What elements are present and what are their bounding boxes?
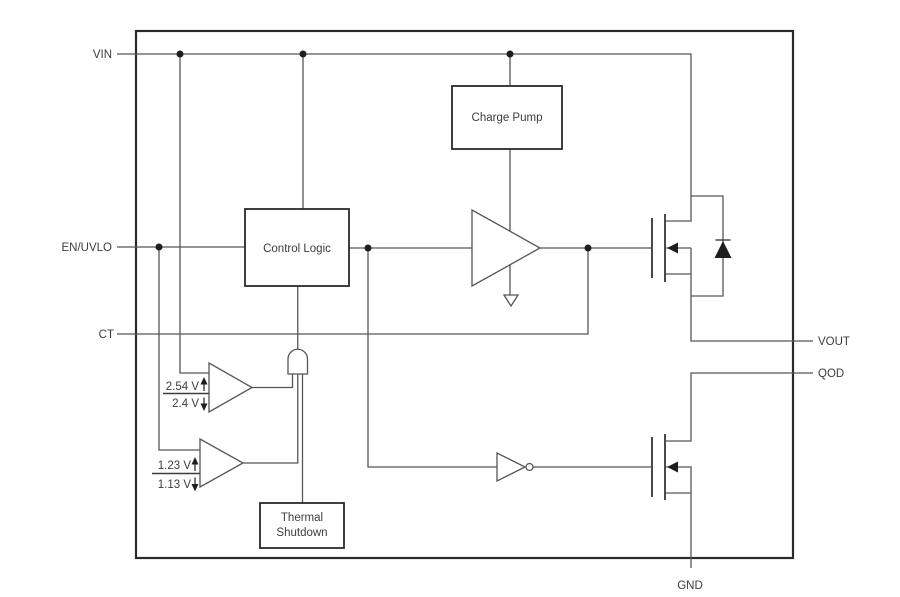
uvlo-comparator-icon — [209, 363, 252, 412]
wire-gnd — [665, 467, 691, 568]
uvlo-falling-threshold: 2.4 V — [172, 398, 199, 410]
uvlo-rising-threshold: 2.54 V — [166, 381, 200, 393]
up-arrow-icon — [201, 377, 208, 391]
control-logic-label: Control Logic — [263, 243, 331, 255]
wire-uvlo-comparator-to-and — [252, 374, 293, 388]
junction-dot — [507, 51, 514, 58]
wire-vout — [665, 248, 813, 341]
down-arrow-icon — [201, 398, 208, 412]
diagram-svg: Charge Pump Control Logic Thermal Shutdo… — [0, 0, 900, 597]
pin-label-vout: VOUT — [818, 336, 850, 348]
wire-vin-to-uvlo-comparator — [180, 54, 209, 373]
pin-label-vin: VIN — [93, 49, 112, 61]
pin-label-ct: CT — [99, 329, 114, 341]
qod-fet-icon — [652, 434, 678, 500]
en-falling-threshold: 1.13 V — [158, 479, 192, 491]
wire-qod — [665, 373, 813, 441]
and-gate-icon — [288, 349, 308, 374]
junction-dot — [177, 51, 184, 58]
junction-dot — [156, 244, 163, 251]
ground-icon — [504, 295, 518, 306]
pin-label-en-uvlo: EN/UVLO — [62, 242, 113, 254]
junction-dot — [300, 51, 307, 58]
wire-body-diode-branch — [691, 196, 723, 296]
junction-dot — [585, 245, 592, 252]
body-diode-icon — [715, 240, 732, 258]
en-rising-threshold: 1.23 V — [158, 460, 192, 472]
pass-fet-icon — [652, 214, 678, 282]
charge-pump-label: Charge Pump — [472, 112, 543, 124]
en-comparator-icon — [200, 439, 243, 487]
pin-label-gnd: GND — [677, 580, 703, 592]
block-diagram: Charge Pump Control Logic Thermal Shutdo… — [0, 0, 900, 597]
wire-vin-rail — [117, 54, 691, 221]
junction-dot — [365, 245, 372, 252]
down-arrow-icon — [192, 478, 199, 492]
pin-label-qod: QOD — [818, 368, 844, 380]
up-arrow-icon — [192, 457, 199, 471]
inverter-icon — [497, 453, 533, 481]
thermal-shutdown-label-line2: Shutdown — [276, 527, 327, 539]
gate-driver-buffer-icon — [472, 210, 540, 286]
thermal-shutdown-label-line1: Thermal — [281, 512, 323, 524]
thermal-shutdown-block — [260, 503, 344, 548]
